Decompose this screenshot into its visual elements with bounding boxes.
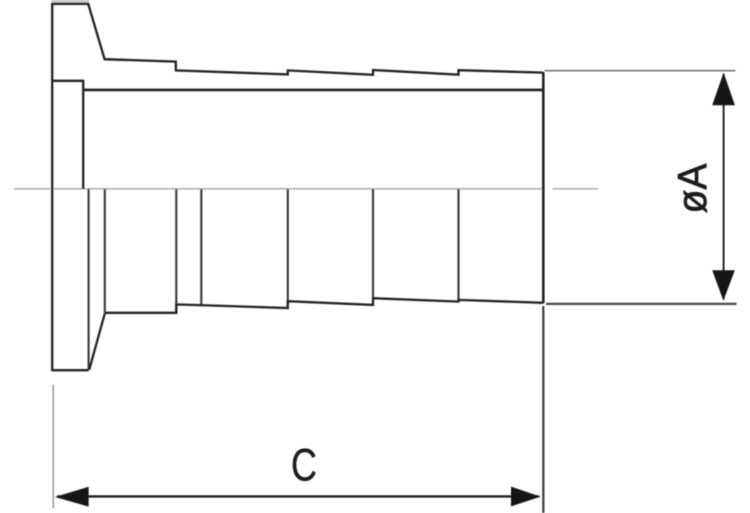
svg-text:øA: øA [669,163,715,214]
svg-text:C: C [291,440,317,491]
